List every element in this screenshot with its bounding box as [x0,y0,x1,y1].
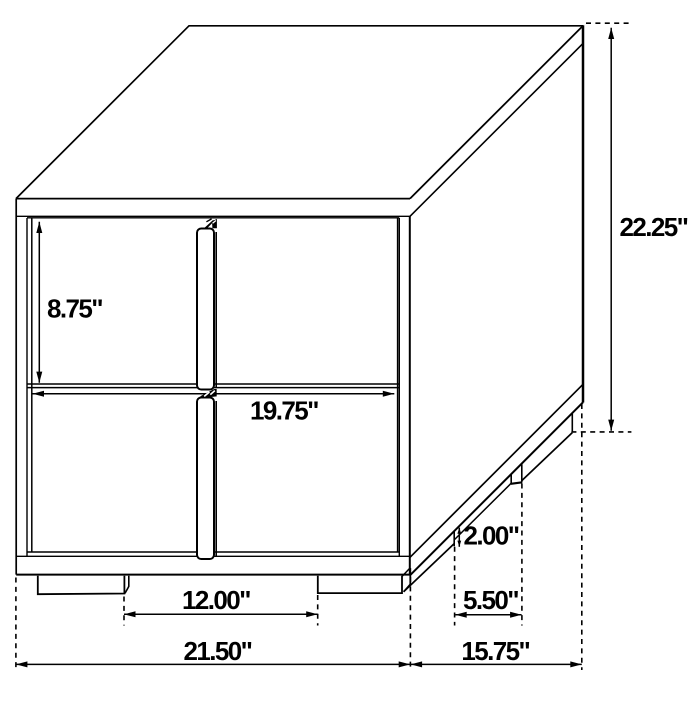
svg-text:19.75": 19.75" [250,396,318,426]
svg-text:8.75": 8.75" [47,294,102,324]
svg-text:2.00": 2.00" [464,521,519,551]
svg-text:15.75": 15.75" [461,636,529,666]
svg-text:22.25": 22.25" [620,212,688,242]
svg-text:21.50": 21.50" [184,636,252,666]
svg-text:5.50": 5.50" [463,585,518,615]
svg-text:12.00": 12.00" [182,585,250,615]
